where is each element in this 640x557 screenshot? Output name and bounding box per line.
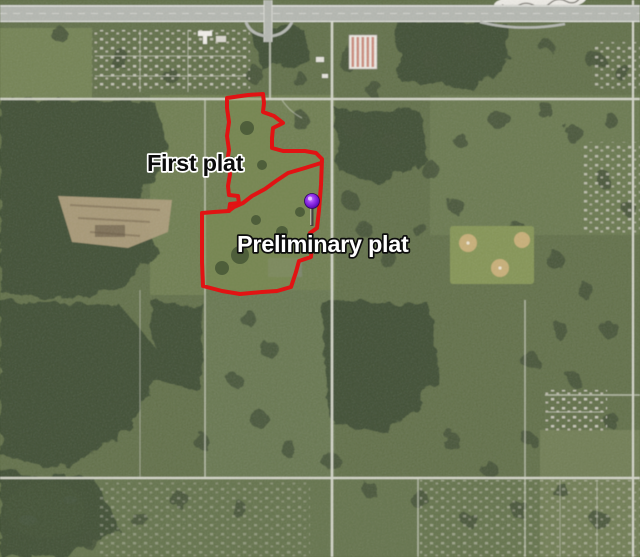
first-plat-label: First plat [147, 150, 244, 176]
terrain [0, 0, 640, 557]
aerial-basemap: First plat Preliminary plat [0, 0, 640, 557]
preliminary-plat-label: Preliminary plat [237, 231, 409, 257]
pin-glint [308, 197, 312, 201]
pin-head [305, 194, 320, 209]
plat-map: First plat Preliminary plat [0, 0, 640, 557]
photo-grain [0, 0, 640, 557]
